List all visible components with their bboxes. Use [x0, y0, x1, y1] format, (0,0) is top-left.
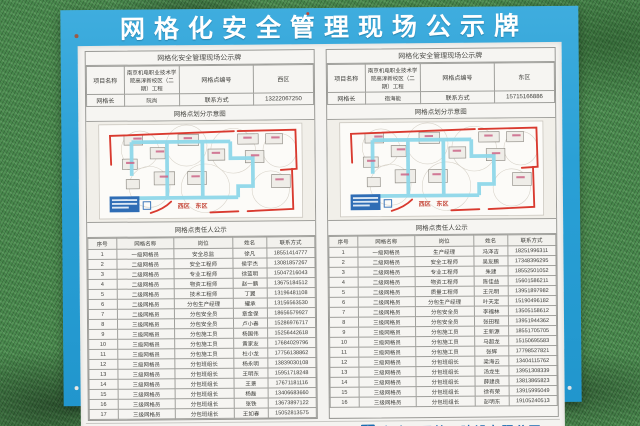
project-label: 项目名称	[327, 64, 366, 92]
cell-name: 马超龙	[474, 336, 508, 346]
cell-no: 9	[329, 327, 359, 337]
site-map: 西区 东区	[86, 120, 315, 223]
cell-tel: 18552501052	[508, 265, 556, 275]
cell-name: 梁海云	[475, 356, 509, 366]
cell-tel: 13404115762	[509, 355, 557, 365]
cell-no: 6	[88, 299, 118, 309]
grid-no-value: 东区	[495, 62, 554, 91]
roster-body: 1 一级网格员 生产经理 冯泽吉 18251996311 2 二级网格员 安全工…	[328, 245, 556, 407]
cell-post: 分包班组长	[416, 366, 475, 377]
cell-tel: 13813865823	[509, 375, 557, 385]
project-info-table: 项目名称 南京机电职业技术学院高淳新校区（二期）工程 网格点编号 西区 网格长 …	[85, 64, 313, 107]
cell-name: 丁翼	[233, 288, 267, 298]
panel-east: 网格化安全管理现场公示牌 项目名称 南京机电职业技术学院高淳新校区（二期）工程 …	[325, 47, 558, 419]
screw-top-left	[74, 34, 78, 38]
screw-bottom-left	[75, 386, 79, 390]
col-header-name: 姓名	[474, 235, 508, 246]
cell-no: 8	[88, 319, 118, 329]
cell-grid: 二级网格员	[117, 269, 174, 279]
grid-no-label: 网格点编号	[179, 65, 254, 94]
cell-no: 9	[88, 329, 118, 339]
cell-no: 8	[329, 317, 359, 327]
cell-tel: 17756138862	[268, 348, 316, 358]
cell-grid: 三级网格员	[359, 327, 416, 337]
cell-post: 分包施工员	[174, 328, 233, 339]
cell-no: 3	[88, 269, 118, 279]
cell-grid: 三级网格员	[359, 387, 416, 397]
contact-value: 13222067250	[254, 93, 313, 106]
cell-grid: 三级网格员	[359, 377, 416, 387]
cell-tel: 13406683660	[268, 388, 316, 398]
col-header-grid: 网格名称	[358, 236, 415, 247]
cell-no: 16	[89, 399, 119, 409]
col-header-no: 序号	[87, 238, 117, 249]
cell-tel: 13951897982	[508, 285, 556, 295]
cell-grid: 三级网格员	[359, 397, 416, 407]
cell-no: 3	[329, 267, 359, 277]
company-name: 中建八局第三建设有限公司	[380, 420, 542, 426]
cell-tel: 13951944362	[508, 315, 556, 325]
roster-table: 序号 网格名称 岗位 姓名 联系方式 1 一级网格员	[87, 236, 317, 420]
cell-no: 4	[329, 277, 359, 287]
cell-tel: 13081857267	[267, 258, 315, 268]
cell-name: 吴友鹏	[474, 256, 508, 266]
cell-post: 物资工程师	[174, 278, 233, 289]
cell-no: 15	[330, 387, 360, 397]
cell-post: 分包安全员	[174, 308, 233, 319]
cell-name: 杨永明	[234, 358, 268, 368]
cell-grid: 三级网格员	[118, 409, 175, 419]
cell-no: 12	[88, 359, 118, 369]
cell-grid: 三级网格员	[118, 339, 175, 349]
cell-post: 安全工程师	[415, 256, 474, 267]
cell-grid: 二级网格员	[117, 289, 174, 299]
cell-no: 13	[329, 367, 359, 377]
cell-name: 张田程	[474, 316, 508, 326]
cell-tel: 13673897122	[268, 398, 316, 408]
cell-post: 安全总监	[174, 248, 233, 259]
cell-no: 7	[329, 307, 359, 317]
cell-grid: 二级网格员	[358, 307, 415, 317]
leader-name: 宿海能	[366, 92, 421, 104]
cell-name: 朱建	[474, 266, 508, 276]
cell-tel: 13915995049	[509, 385, 557, 395]
cell-tel: 17348396295	[508, 255, 556, 265]
roster-table: 序号 网格名称 岗位 姓名 联系方式 1 一级网格员	[328, 234, 557, 408]
site-map-drawing: 西区 东区	[88, 122, 313, 220]
cell-tel: 18551705705	[508, 325, 556, 335]
cell-tel: 17684029796	[267, 338, 315, 348]
cell-tel: 13951308339	[509, 365, 557, 375]
cell-no: 2	[87, 259, 117, 269]
cell-name: 陈佳益	[474, 276, 508, 286]
cell-name: 赵一鹏	[233, 278, 267, 288]
screw-top-center	[306, 12, 309, 15]
cell-grid: 二级网格员	[117, 309, 174, 319]
cell-post: 分包班组长	[175, 368, 234, 379]
cell-name: 徐凡	[233, 248, 267, 258]
cell-post: 分包施工员	[415, 336, 474, 347]
cell-name: 王元明	[474, 286, 508, 296]
cell-no: 14	[89, 379, 119, 389]
contact-value: 15715166886	[495, 90, 554, 103]
cell-post: 分包班组长	[416, 396, 475, 407]
cell-grid: 一级网格员	[358, 247, 415, 257]
cell-no: 17	[89, 409, 119, 419]
cell-tel: 15256442618	[267, 328, 315, 338]
cell-post: 物资工程师	[415, 276, 474, 287]
map-label-east: 东区	[195, 202, 207, 210]
cell-no: 16	[330, 397, 360, 407]
col-header-tel: 联系方式	[508, 234, 556, 245]
cell-grid: 三级网格员	[118, 349, 175, 359]
col-header-no: 序号	[328, 236, 358, 247]
cell-post: 分包班组长	[416, 386, 475, 397]
cell-tel: 19105240513	[509, 395, 557, 405]
cell-post: 分包班组长	[175, 398, 234, 409]
cell-name: 李福林	[474, 306, 508, 316]
col-header-post: 岗位	[415, 235, 474, 247]
cell-post: 分包安全员	[415, 306, 474, 317]
cell-grid: 三级网格员	[118, 399, 175, 409]
cell-tel: 15601586211	[508, 275, 556, 285]
cell-name: 叶天定	[474, 296, 508, 306]
cell-name: 章金保	[233, 308, 267, 318]
cell-no: 2	[328, 257, 358, 267]
cell-name: 杨磊	[234, 388, 268, 398]
project-info-table: 项目名称 南京机电职业技术学院高淳新校区（二期）工程 网格点编号 东区 网格长 …	[326, 62, 554, 105]
project-name: 南京机电职业技术学院高淳新校区（二期）工程	[124, 66, 179, 94]
cell-grid: 二级网格员	[117, 299, 174, 309]
cell-name: 王新源	[474, 326, 508, 336]
cell-tel: 13505158612	[508, 305, 556, 315]
cell-post: 分包班组长	[175, 358, 234, 369]
cell-post: 技术工程师	[174, 288, 233, 299]
cell-name: 彭明东	[475, 396, 509, 406]
map-label-east: 东区	[436, 200, 448, 208]
cell-grid: 二级网格员	[117, 279, 174, 289]
cell-no: 11	[329, 347, 359, 357]
roster-row: 17 三级网格员 分包班组长 王如春 15052813575	[89, 408, 316, 420]
cell-name: 冯泽吉	[474, 246, 508, 256]
contact-label: 联系方式	[179, 93, 254, 106]
cell-tel: 18656579927	[267, 308, 315, 318]
cell-post: 分包生产经理	[415, 296, 474, 307]
cell-post: 分包安全员	[174, 318, 233, 329]
cell-grid: 二级网格员	[358, 297, 415, 307]
cell-grid: 二级网格员	[358, 257, 415, 267]
cell-tel: 18251996311	[508, 245, 556, 255]
grid-no-label: 网格点编号	[420, 63, 495, 92]
project-label: 项目名称	[86, 66, 125, 94]
cell-post: 分包班组长	[175, 408, 234, 419]
white-panel: 网格化安全管理现场公示牌 项目名称 南京机电职业技术学院高淳新校区（二期）工程 …	[78, 42, 565, 426]
cell-name: 王如春	[234, 408, 268, 418]
cell-name: 张辉	[474, 346, 508, 356]
notice-board: 网格化安全管理现场公示牌 网格化安全管理现场公示牌 项目名称 南京机电职业技术学…	[60, 6, 581, 407]
col-header-grid: 网格名称	[117, 238, 174, 249]
contact-label: 联系方式	[420, 91, 495, 104]
roster-body: 1 一级网格员 安全总监 徐凡 18551414777 2 二级网格员 安全工程…	[87, 248, 315, 420]
cell-name: 张铁	[234, 398, 268, 408]
cell-no: 13	[88, 369, 118, 379]
cell-grid: 三级网格员	[117, 319, 174, 329]
leader-name: 阮尚	[125, 94, 180, 106]
cell-grid: 三级网格员	[359, 357, 416, 367]
cell-no: 5	[88, 289, 118, 299]
cell-post: 分包生产经理	[174, 298, 233, 309]
panels-row: 网格化安全管理现场公示牌 项目名称 南京机电职业技术学院高淳新校区（二期）工程 …	[83, 47, 560, 421]
cell-post: 分包安全员	[415, 316, 474, 327]
cell-name: 王景	[234, 378, 268, 388]
cell-grid: 三级网格员	[118, 329, 175, 339]
cell-name: 黄家友	[233, 338, 267, 348]
cell-grid: 三级网格员	[118, 379, 175, 389]
cell-tel: 17671181116	[268, 378, 316, 388]
cell-tel: 15190496182	[508, 295, 556, 305]
cell-post: 安全工程师	[174, 258, 233, 269]
board-title: 网格化安全管理现场公示牌	[60, 6, 578, 47]
cell-post: 质量工程师	[415, 286, 474, 297]
cell-tel: 13839030108	[268, 358, 316, 368]
cell-tel: 18551414777	[267, 248, 315, 258]
cell-grid: 二级网格员	[358, 277, 415, 287]
cell-tel: 13156563530	[267, 298, 315, 308]
cell-post: 分包班组长	[416, 376, 475, 387]
site-map: 西区 东区	[327, 118, 556, 221]
cell-post: 分包班组长	[416, 356, 475, 367]
site-map-drawing: 西区 东区	[329, 120, 554, 218]
cell-name: 汤龙生	[475, 366, 509, 376]
leader-label: 网格长	[327, 92, 366, 104]
cell-name: 徐蓝明	[233, 268, 267, 278]
cell-name: 耀承	[233, 298, 267, 308]
cell-post: 分包施工员	[415, 326, 474, 337]
cell-grid: 二级网格员	[117, 259, 174, 269]
cell-no: 1	[328, 247, 358, 257]
cell-tel: 13196481108	[267, 288, 315, 298]
cell-name: 徐有荣	[475, 386, 509, 396]
cell-tel: 15052813575	[268, 408, 316, 418]
cell-post: 分包施工员	[415, 346, 474, 357]
cell-grid: 三级网格员	[359, 347, 416, 357]
cell-post: 生产经理	[415, 246, 474, 257]
cell-name: 卢小春	[233, 318, 267, 328]
col-header-tel: 联系方式	[267, 237, 315, 248]
cell-name: 杨国伟	[233, 328, 267, 338]
roster-row: 16 三级网格员 分包班组长 彭明东 19105240513	[330, 395, 557, 407]
cell-grid: 三级网格员	[359, 367, 416, 377]
cell-no: 10	[88, 339, 118, 349]
cell-tel: 15150695583	[508, 335, 556, 345]
cell-name: 薛建良	[475, 376, 509, 386]
cell-tel: 15047216043	[267, 268, 315, 278]
cell-post: 分包施工员	[174, 348, 233, 359]
cell-grid: 三级网格员	[118, 369, 175, 379]
cell-post: 分包班组长	[175, 378, 234, 389]
screw-bottom-right	[568, 386, 572, 390]
cell-no: 4	[88, 279, 118, 289]
cell-post: 分包施工员	[174, 338, 233, 349]
cell-no: 10	[329, 337, 359, 347]
cell-post: 专业工程师	[174, 268, 233, 279]
cell-grid: 二级网格员	[358, 267, 415, 277]
cell-grid: 三级网格员	[358, 317, 415, 327]
cell-grid: 三级网格员	[118, 389, 175, 399]
leader-label: 网格长	[86, 94, 125, 106]
cell-post: 专业工程师	[415, 266, 474, 277]
cell-grid: 二级网格员	[358, 287, 415, 297]
cell-no: 1	[87, 249, 117, 259]
panel-west: 网格化安全管理现场公示牌 项目名称 南京机电职业技术学院高淳新校区（二期）工程 …	[84, 49, 317, 421]
col-header-name: 姓名	[233, 237, 267, 248]
cell-name: 侯宇杰	[233, 258, 267, 268]
map-label-west: 西区	[418, 200, 430, 208]
cell-post: 分包班组长	[175, 388, 234, 399]
cell-no: 12	[329, 357, 359, 367]
grid-no-value: 西区	[254, 65, 313, 94]
cell-tel: 13675184512	[267, 278, 315, 288]
cell-tel: 15951718248	[268, 368, 316, 378]
cell-grid: 一级网格员	[117, 249, 174, 259]
cell-no: 15	[89, 389, 119, 399]
cell-no: 7	[88, 309, 118, 319]
cell-name: 王明东	[234, 368, 268, 378]
cell-tel: 15286976717	[267, 318, 315, 328]
map-label-west: 西区	[177, 202, 189, 210]
col-header-post: 岗位	[174, 237, 233, 249]
cell-tel: 17798527821	[509, 345, 557, 355]
cell-no: 14	[329, 377, 359, 387]
cell-name: 杜小龙	[234, 348, 268, 358]
cell-grid: 三级网格员	[359, 337, 416, 347]
project-name: 南京机电职业技术学院高淳新校区（二期）工程	[365, 64, 420, 92]
cell-grid: 三级网格员	[118, 359, 175, 369]
cell-no: 11	[88, 349, 118, 359]
cell-no: 5	[329, 287, 359, 297]
cell-no: 6	[329, 297, 359, 307]
